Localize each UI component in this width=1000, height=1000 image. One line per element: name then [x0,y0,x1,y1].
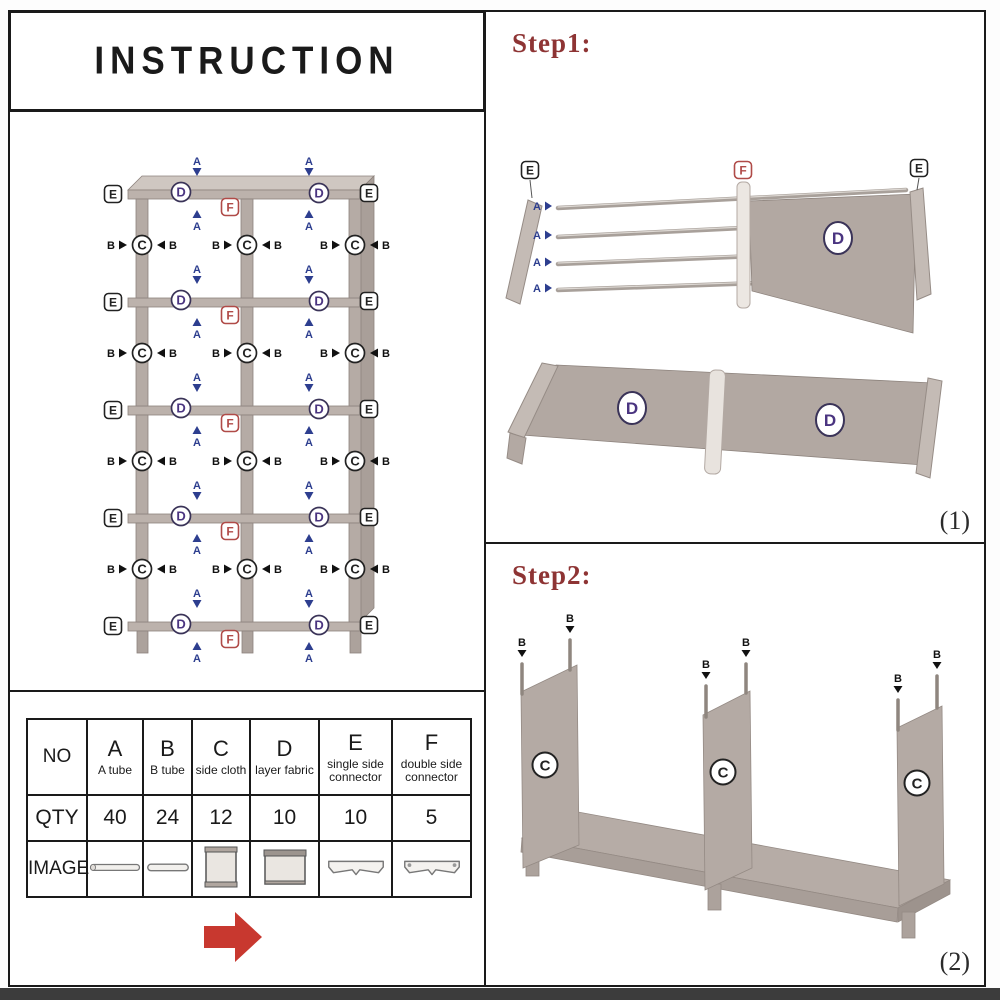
assembled-shelf-panel: D D C C E F [8,110,486,692]
assembled-shelf-diagram: D D C C E F [10,112,484,690]
part-name: layer fabric [251,764,318,777]
table-qty-row: QTY 40 24 12 10 10 5 [27,795,471,841]
qty-a: 40 [87,795,143,841]
gap-labels-row1 [107,236,390,255]
col-header-f: F double side connector [392,719,471,795]
gap-labels-row3 [107,452,390,471]
row-header-image: IMAGE [27,841,87,897]
image-e [319,841,392,897]
layer-fabric-d [749,194,916,333]
label-b [933,649,942,669]
side-cloth-panel-middle [703,691,752,890]
label-e [911,160,928,177]
shelf-legs [137,631,361,653]
gap-labels-row2 [107,344,390,363]
next-step-red-arrow-icon [204,911,264,963]
part-letter: B [144,737,191,761]
part-letter: E [320,731,391,755]
label-b [566,613,575,633]
photo-edge-strip [0,988,1000,1000]
label-f [735,162,752,179]
part-name: B tube [144,764,191,777]
col-header-a: A A tube [87,719,143,795]
row-header-qty: QTY [27,795,87,841]
label-a [533,230,552,242]
parts-list-panel: NO A A tube B B tube C side cloth D laye… [8,690,486,987]
image-b [143,841,192,897]
step1-top-assembly [506,160,931,334]
part-letter: D [251,737,318,761]
finished-layer-board [522,365,933,465]
label-c [711,760,736,785]
part-name: side cloth [193,764,249,777]
page-title: INSTRUCTION [94,39,399,84]
gap-labels-row4 [107,560,390,579]
left-end-foot [507,433,526,464]
part-letter: F [393,731,470,755]
parts-table: NO A A tube B B tube C side cloth D laye… [26,718,472,898]
label-d [816,404,844,436]
col-header-b: B B tube [143,719,192,795]
instruction-sheet: { "title": "INSTRUCTION", "labels": { "A… [0,0,1000,1000]
side-cloth-icon [199,844,243,890]
qty-e: 10 [319,795,392,841]
label-a [533,201,552,213]
side-cloth-panel-right [897,706,944,906]
label-a [533,257,552,269]
image-d [250,841,319,897]
step2-panel: Step2: (2) [484,542,986,987]
label-d [618,392,646,424]
label-c [905,771,930,796]
label-b [518,637,527,657]
col-header-d: D layer fabric [250,719,319,795]
short-tube-icon [145,855,191,879]
figure-number-1: (1) [940,506,970,536]
base-leg [902,912,915,938]
part-name: A tube [88,764,142,777]
part-letter: A [88,737,142,761]
qty-f: 5 [392,795,471,841]
step2-diagram [486,544,984,985]
label-b [702,659,711,679]
qty-d: 10 [250,795,319,841]
label-b [742,637,751,657]
step1-panel: Step1: [484,10,986,544]
table-header-row: NO A A tube B B tube C side cloth D laye… [27,719,471,795]
shelf-top-face [128,176,374,190]
title-panel: INSTRUCTION [8,10,486,112]
step1-finished-layer [507,363,942,478]
label-d [824,222,852,254]
table-image-row: IMAGE [27,841,471,897]
col-header-no: NO [27,719,87,795]
step1-diagram [486,12,984,542]
image-f [392,841,471,897]
part-name: double side connector [393,758,470,784]
col-header-c: C side cloth [192,719,250,795]
single-side-connector-icon [325,853,387,881]
middle-double-connector [737,182,750,308]
part-letter: C [193,737,249,761]
col-header-e: E single side connector [319,719,392,795]
long-tube-icon [88,855,142,879]
figure-number-2: (2) [940,947,970,977]
double-side-connector-icon [401,853,463,881]
label-a [533,283,552,295]
image-c [192,841,250,897]
part-name: single side connector [320,758,391,784]
qty-b: 24 [143,795,192,841]
label-e [522,162,539,179]
label-b [894,673,903,693]
image-a [87,841,143,897]
label-c [533,753,558,778]
layer-fabric-icon [259,846,311,888]
qty-c: 12 [192,795,250,841]
